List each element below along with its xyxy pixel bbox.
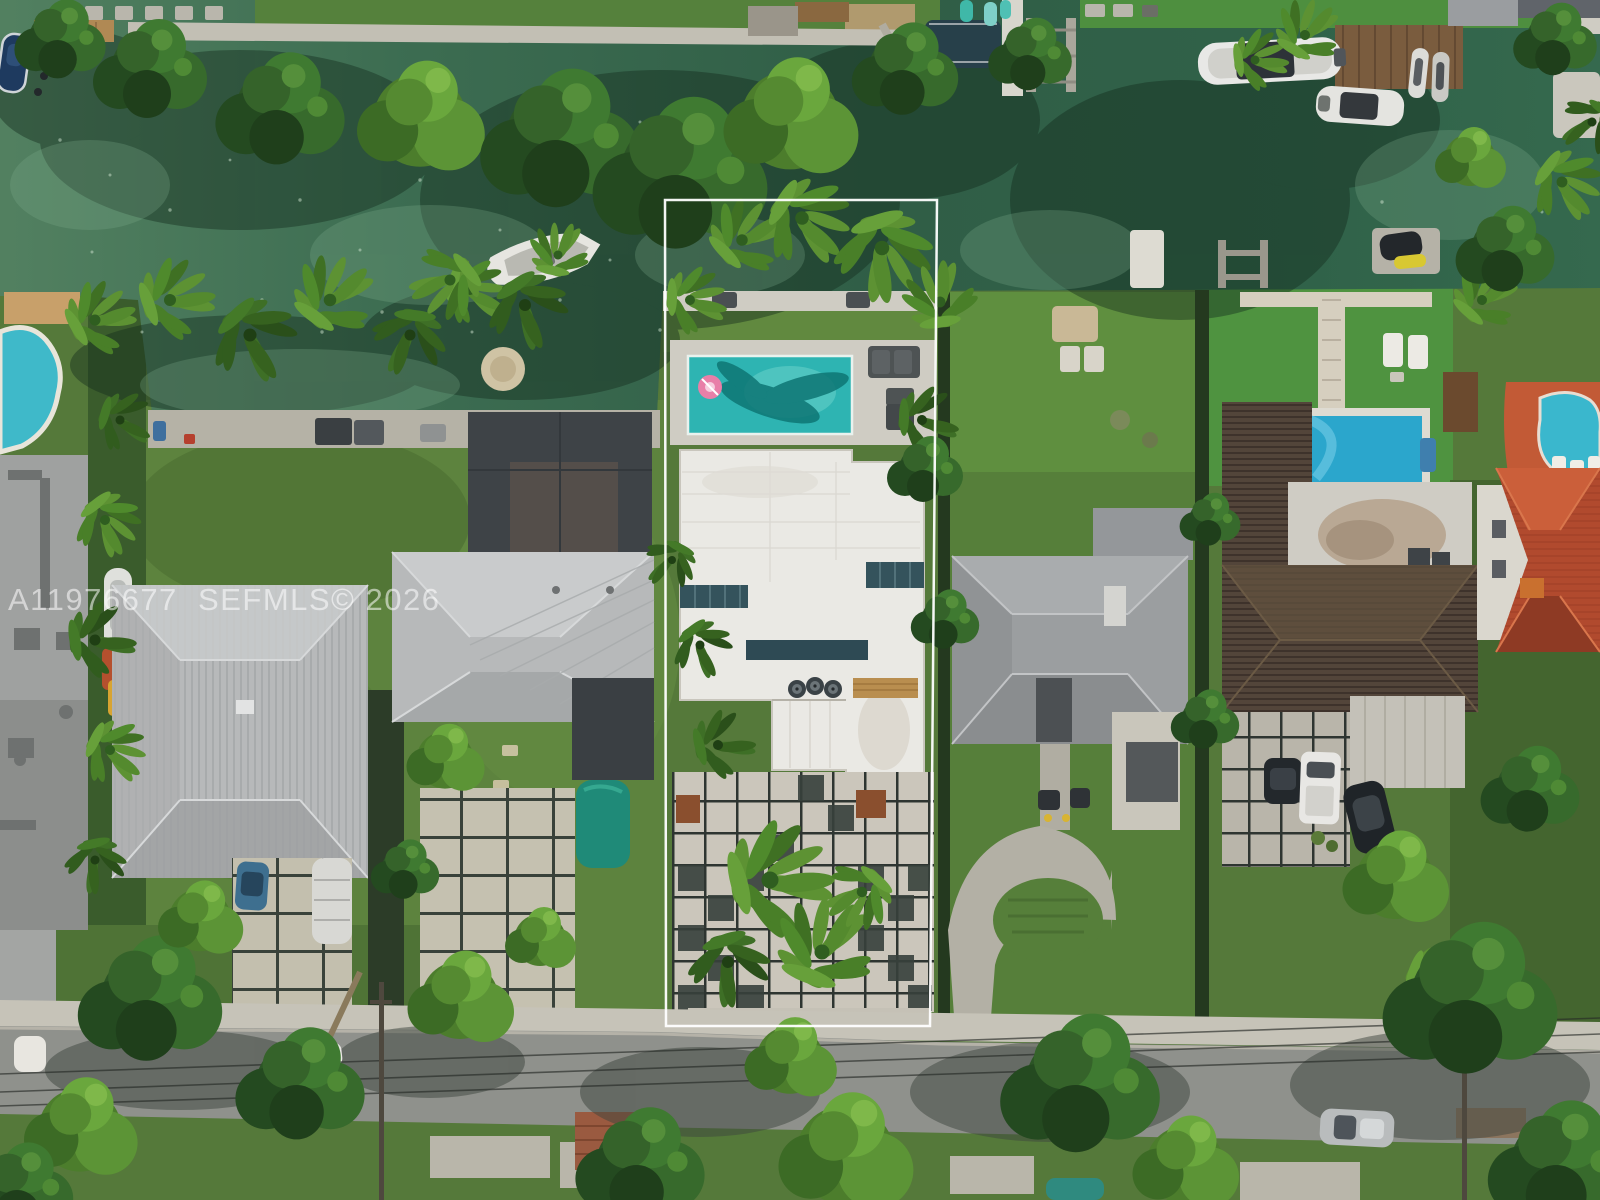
teal-object	[1046, 1178, 1104, 1200]
rooftop-fans	[788, 677, 842, 698]
garage-roof-dark	[572, 678, 654, 780]
teal-boat-cover	[576, 780, 630, 868]
clerestory-left	[680, 585, 748, 608]
lot4-patio	[1112, 712, 1180, 830]
aerial-scene: A11976677 SEFMLS© 2026	[0, 0, 1600, 1200]
wood-roof-strip	[853, 678, 918, 698]
wood-dock	[795, 2, 849, 22]
aerial-listing-photo: A11976677 SEFMLS© 2026	[0, 0, 1600, 1200]
pool-lounger	[1420, 438, 1436, 472]
silver-car	[1319, 1108, 1395, 1148]
dock-lounger-2	[846, 292, 870, 308]
covered-vehicle	[312, 858, 352, 944]
small-boat	[1315, 85, 1405, 127]
center-recess	[746, 640, 868, 660]
chimney-l	[1520, 578, 1544, 598]
tiki-structure	[1443, 372, 1478, 432]
white-vehicle-left	[14, 1036, 46, 1072]
house-1	[112, 585, 368, 878]
dock-structure	[748, 6, 798, 36]
pink-float	[698, 375, 722, 399]
planter-box-2	[856, 790, 886, 818]
lot1-driveway	[232, 858, 352, 1008]
mls-watermark: A11976677 SEFMLS© 2026	[8, 582, 440, 617]
fence-line	[1195, 290, 1209, 1035]
white-pickup	[1299, 751, 1341, 824]
blue-car	[234, 861, 269, 911]
lot5-pool	[1300, 408, 1436, 492]
carport-roof	[1350, 696, 1465, 788]
dark-suv	[1264, 758, 1302, 804]
chimney	[1104, 586, 1126, 626]
planter-box	[676, 795, 700, 823]
far-corner-roof	[1448, 0, 1518, 26]
left-flat-roof-2	[0, 700, 88, 930]
